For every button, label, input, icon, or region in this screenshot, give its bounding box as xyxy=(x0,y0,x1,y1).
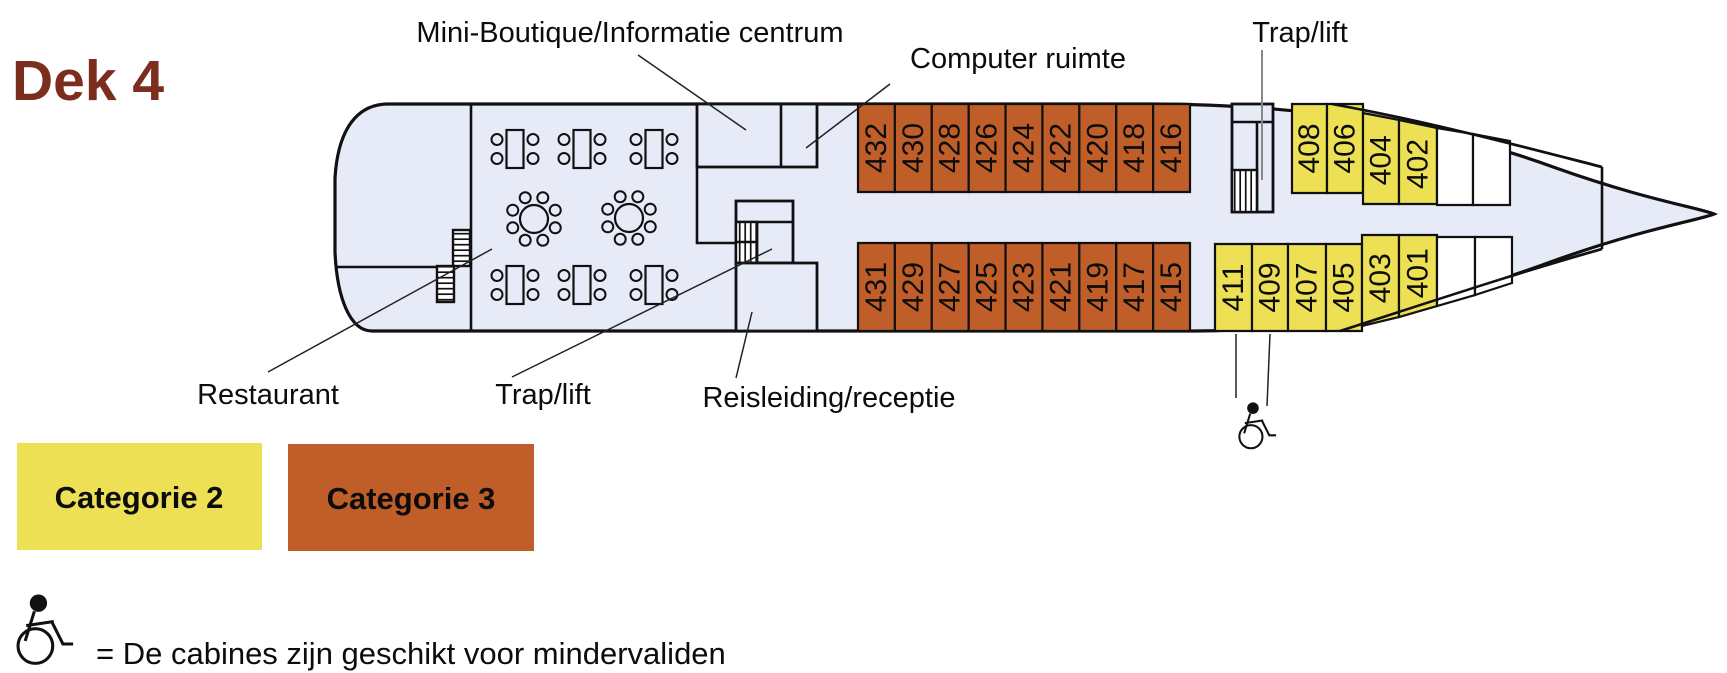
wheelchair-cabin-409-pointer xyxy=(1267,334,1270,406)
legend: Categorie 2 Categorie 3 = De cabines zij… xyxy=(17,443,726,671)
legend-wheelchair-icon xyxy=(18,595,73,664)
chair xyxy=(631,289,642,300)
chair xyxy=(667,134,678,145)
cabin-number-407: 407 xyxy=(1291,262,1324,312)
chair xyxy=(492,289,503,300)
cabin-number-404: 404 xyxy=(1365,135,1398,185)
cabin-number-409: 409 xyxy=(1254,262,1287,312)
cabin-number-427: 427 xyxy=(934,262,967,312)
cabin-number-421: 421 xyxy=(1044,262,1077,312)
cabin-number-419: 419 xyxy=(1081,262,1114,312)
chair xyxy=(595,153,606,164)
cabin-number-403: 403 xyxy=(1364,253,1397,303)
cabin-number-416: 416 xyxy=(1155,123,1188,173)
chair xyxy=(595,270,606,281)
chair xyxy=(559,153,570,164)
deck-wheelchair-icon xyxy=(1239,402,1276,448)
cabin-number-420: 420 xyxy=(1081,123,1114,173)
restaurant-round-table xyxy=(520,205,548,233)
cabin-number-425: 425 xyxy=(971,262,1004,312)
cabin-number-423: 423 xyxy=(1008,262,1041,312)
cabin-number-430: 430 xyxy=(897,123,930,173)
label-mini-boutique: Mini-Boutique/Informatie centrum xyxy=(416,17,843,49)
chair xyxy=(632,234,643,245)
chair xyxy=(520,192,531,203)
page-title: Dek 4 xyxy=(12,49,164,113)
chair xyxy=(507,222,518,233)
chair xyxy=(595,289,606,300)
chair xyxy=(559,270,570,281)
label-stairs-lift-bottom: Trap/lift xyxy=(495,379,591,411)
cabin-number-432: 432 xyxy=(860,123,893,173)
cabin-number-417: 417 xyxy=(1118,262,1151,312)
cabin-number-418: 418 xyxy=(1118,123,1151,173)
cabin-number-428: 428 xyxy=(934,123,967,173)
chair xyxy=(631,134,642,145)
restaurant-table xyxy=(574,266,591,304)
legend-category3-label: Categorie 3 xyxy=(327,481,496,516)
chair xyxy=(631,270,642,281)
deck-plan-page: Dek 4 432430428426424422420418416 xyxy=(0,0,1727,673)
restaurant-table xyxy=(507,266,524,304)
restaurant-table xyxy=(646,266,663,304)
chair xyxy=(528,270,539,281)
cabin-number-424: 424 xyxy=(1008,123,1041,173)
bow-stairs-lift xyxy=(1232,104,1273,212)
chair xyxy=(667,153,678,164)
chair xyxy=(602,204,613,215)
cabin-number-401: 401 xyxy=(1402,248,1435,298)
chair xyxy=(595,134,606,145)
chair xyxy=(528,134,539,145)
cabin-number-408: 408 xyxy=(1293,123,1326,173)
cabin-number-426: 426 xyxy=(971,123,1004,173)
cabin-number-406: 406 xyxy=(1329,123,1362,173)
chair xyxy=(528,289,539,300)
chair xyxy=(645,204,656,215)
legend-category2-label: Categorie 2 xyxy=(55,480,224,515)
chair xyxy=(492,134,503,145)
reception-room xyxy=(736,263,817,331)
deck-plan-figure: Dek 4 432430428426424422420418416 xyxy=(0,0,1727,673)
chair xyxy=(550,222,561,233)
restaurant-table xyxy=(646,130,663,168)
chair xyxy=(632,191,643,202)
bow-room xyxy=(1473,134,1510,205)
chair xyxy=(559,289,570,300)
cabin-number-422: 422 xyxy=(1044,123,1077,173)
chair xyxy=(492,153,503,164)
restaurant-table xyxy=(574,130,591,168)
chair xyxy=(507,205,518,216)
chair xyxy=(520,235,531,246)
chair xyxy=(667,270,678,281)
chair xyxy=(615,234,626,245)
chair xyxy=(550,205,561,216)
cabin-number-429: 429 xyxy=(897,262,930,312)
cabin-number-431: 431 xyxy=(860,262,893,312)
mid-stairs-lift xyxy=(736,201,793,263)
chair xyxy=(492,270,503,281)
chair xyxy=(537,192,548,203)
chair xyxy=(528,153,539,164)
label-reception: Reisleiding/receptie xyxy=(702,382,955,414)
chair xyxy=(615,191,626,202)
cabin-number-405: 405 xyxy=(1328,262,1361,312)
chair xyxy=(559,134,570,145)
cabin-number-411: 411 xyxy=(1217,264,1250,312)
mini-boutique-room xyxy=(697,104,817,167)
label-stairs-lift-top: Trap/lift xyxy=(1252,17,1348,49)
wheelchair-note: = De cabines zijn geschikt voor minderva… xyxy=(96,636,726,671)
cabin-number-402: 402 xyxy=(1402,139,1435,189)
chair xyxy=(537,235,548,246)
cabin-number-415: 415 xyxy=(1155,262,1188,312)
restaurant-table xyxy=(507,130,524,168)
chair xyxy=(645,221,656,232)
chair xyxy=(602,221,613,232)
restaurant-round-table xyxy=(615,204,643,232)
label-computer-room: Computer ruimte xyxy=(910,43,1126,75)
bow-room xyxy=(1437,128,1473,205)
label-restaurant: Restaurant xyxy=(197,379,339,411)
chair xyxy=(631,153,642,164)
bow-room xyxy=(1437,237,1475,306)
